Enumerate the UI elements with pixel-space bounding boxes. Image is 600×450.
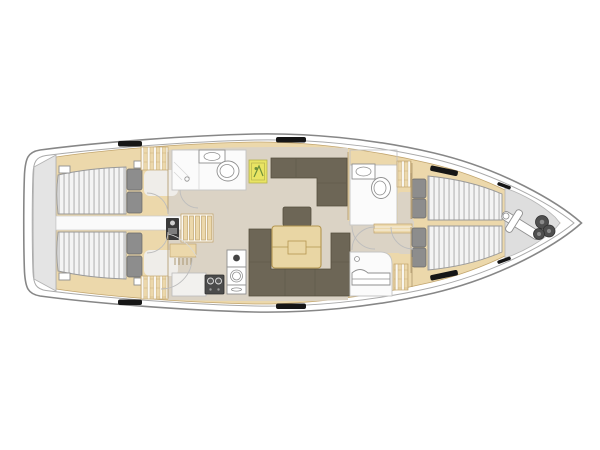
- instrument-dial-icon: [170, 221, 175, 226]
- drum-hub-icon: [547, 229, 551, 233]
- engine-compartment-strip: [56, 216, 182, 230]
- pillow: [127, 256, 142, 277]
- bedside-shelf: [59, 273, 70, 280]
- aft-head: [172, 150, 246, 190]
- wardrobe-slats: [141, 147, 168, 170]
- step: [190, 216, 194, 240]
- step: [202, 216, 206, 240]
- pillow: [127, 233, 142, 254]
- ottoman: [283, 207, 311, 226]
- galley-drawer: [227, 285, 246, 294]
- step: [196, 216, 200, 240]
- pillow: [412, 199, 426, 218]
- drum-hub-icon: [540, 220, 545, 225]
- sink-counter: [352, 164, 375, 179]
- burner-icon: [208, 278, 214, 284]
- bedside-shelf: [59, 166, 70, 173]
- wardrobe-slats: [141, 276, 168, 299]
- burner-icon: [216, 278, 222, 284]
- anchor-locker: [496, 188, 560, 258]
- step-unit: [374, 224, 412, 233]
- pillow: [412, 228, 426, 247]
- pillow: [412, 248, 426, 267]
- sink-counter: [199, 150, 225, 163]
- floorplan-canvas: [0, 0, 600, 450]
- pillow: [127, 169, 142, 190]
- corridor-step: [374, 224, 412, 233]
- pillow: [127, 192, 142, 213]
- tv-panel: [249, 160, 267, 183]
- step: [184, 216, 188, 240]
- swim-platform: [33, 155, 56, 291]
- stove-knob-icon: [209, 288, 211, 290]
- deck-hatch: [276, 304, 306, 310]
- locker-slats: [394, 264, 408, 290]
- yacht-floorplan: [0, 0, 600, 450]
- aft-stbd-bed: [57, 232, 126, 279]
- deck-hatch: [118, 141, 142, 147]
- stove: [205, 275, 224, 294]
- instrument-screen-icon: [168, 228, 177, 234]
- stove-knob-icon: [217, 288, 219, 290]
- faucet-icon: [233, 255, 240, 262]
- deck-hatch: [118, 300, 142, 306]
- step: [208, 216, 212, 240]
- chart-desk: [170, 244, 196, 257]
- tv-art-dot-icon: [255, 167, 258, 170]
- locker-slats: [397, 161, 411, 187]
- companionway: [181, 214, 213, 242]
- deck-hatch: [276, 137, 306, 143]
- drum-hub-icon: [537, 232, 541, 236]
- pillow: [412, 179, 426, 198]
- aft-port-bed: [57, 167, 126, 214]
